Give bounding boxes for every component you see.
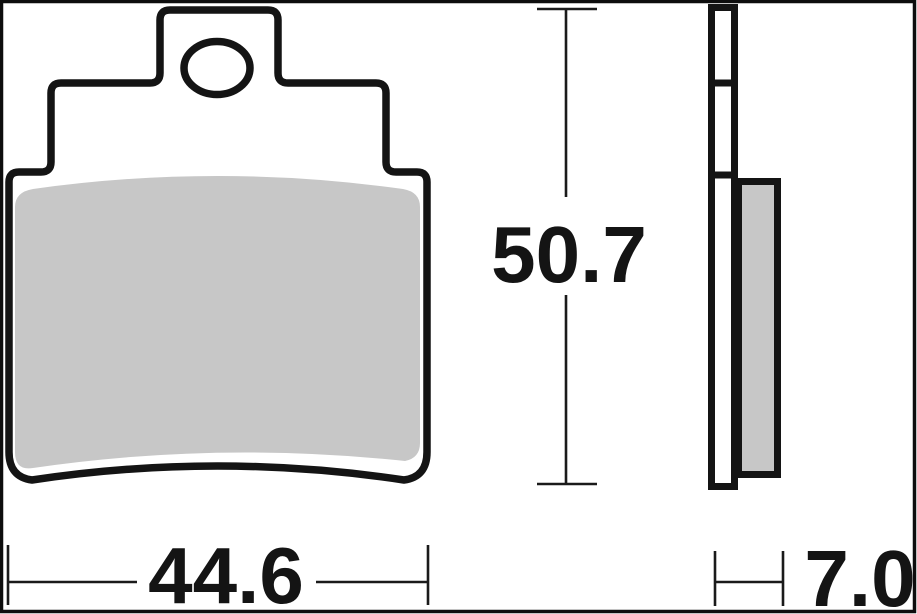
friction-material-side — [739, 182, 778, 475]
width-dim-label: 44.6 — [148, 531, 304, 614]
mounting-hole — [184, 42, 250, 95]
height-dim-label: 50.7 — [491, 210, 647, 299]
brake-pad-technical-drawing: 50.7 44.6 7.0 — [0, 0, 917, 614]
drawing-svg: 50.7 44.6 7.0 — [0, 0, 917, 614]
backplate-side — [712, 8, 735, 487]
friction-material-front — [15, 176, 420, 468]
thickness-dim-label: 7.0 — [804, 534, 915, 614]
